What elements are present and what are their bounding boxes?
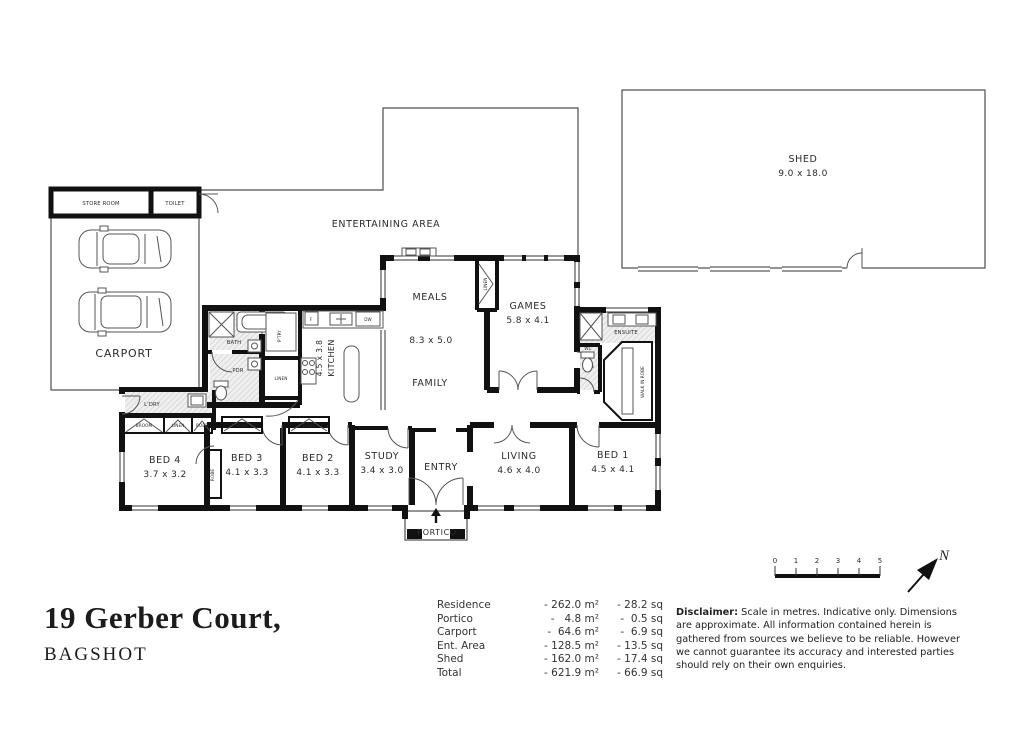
scale-bar: 0 1 2 3 4 5 bbox=[773, 557, 882, 576]
address-line1: 19 Gerber Court, bbox=[44, 600, 281, 636]
robe-bed3-label: ROBE bbox=[236, 423, 248, 428]
table-row: Residence - 262.0 m² - 28.2 sq bbox=[437, 599, 663, 613]
pantry-label: P'TRY bbox=[277, 330, 282, 342]
areas-table: Residence - 262.0 m² - 28.2 sq Portico -… bbox=[437, 599, 663, 681]
entertaining-label: ENTERTAINING AREA bbox=[332, 219, 440, 230]
area-m2: - 162.0 m² bbox=[513, 653, 599, 667]
car-icon bbox=[79, 288, 171, 336]
car-icon bbox=[79, 226, 171, 272]
toilet-label: TOILET bbox=[164, 201, 185, 207]
bed1-dims: 4.5 x 4.1 bbox=[591, 465, 634, 475]
area-label: Ent. Area bbox=[437, 640, 513, 654]
area-label: Carport bbox=[437, 626, 513, 640]
area-m2: - 128.5 m² bbox=[513, 640, 599, 654]
bed1-label: BED 1 bbox=[597, 450, 629, 461]
bed2-dims: 4.1 x 3.3 bbox=[296, 468, 339, 478]
portico: PORTICO bbox=[405, 508, 467, 540]
family-label: FAMILY bbox=[412, 378, 448, 389]
pdr-label: PDR bbox=[232, 368, 244, 374]
linen-hall-label: LINEN bbox=[172, 423, 185, 428]
bed2-label: BED 2 bbox=[302, 453, 334, 464]
address-line2: BAGSHOT bbox=[44, 644, 281, 666]
bath-label: BATH bbox=[227, 340, 242, 346]
table-row: Portico - 4.8 m² - 0.5 sq bbox=[437, 613, 663, 627]
area-sq: - 0.5 sq bbox=[599, 613, 663, 627]
games-label: GAMES bbox=[509, 301, 546, 312]
dishwasher-label: DW bbox=[364, 317, 372, 322]
address-block: 19 Gerber Court, BAGSHOT bbox=[44, 600, 281, 666]
entry-label: ENTRY bbox=[424, 462, 458, 473]
table-row: Total - 621.9 m² - 66.9 sq bbox=[437, 667, 663, 681]
robe-hall-label: ROBE bbox=[196, 423, 208, 428]
area-label: Portico bbox=[437, 613, 513, 627]
shed-label: SHED bbox=[789, 154, 818, 165]
area-label: Residence bbox=[437, 599, 513, 613]
area-m2: - 64.6 m² bbox=[513, 626, 599, 640]
basin bbox=[248, 340, 261, 352]
store-room-label: STORE ROOM bbox=[82, 201, 119, 207]
portico-label: PORTICO bbox=[417, 528, 456, 537]
area-m2: - 262.0 m² bbox=[513, 599, 599, 613]
scale-tick-5: 5 bbox=[878, 557, 882, 565]
table-row: Ent. Area - 128.5 m² - 13.5 sq bbox=[437, 640, 663, 654]
disclaimer-heading: Disclaimer: bbox=[676, 607, 738, 618]
shed-roller-doors bbox=[638, 265, 842, 272]
disclaimer: Disclaimer: Scale in metres. Indicative … bbox=[676, 606, 966, 672]
broom-label: BROOM bbox=[136, 423, 153, 428]
scale-tick-3: 3 bbox=[836, 557, 840, 565]
study-label: STUDY bbox=[365, 451, 399, 462]
north-arrow-icon: N bbox=[908, 548, 950, 592]
living-dims: 4.6 x 4.0 bbox=[497, 466, 540, 476]
robe-bed4-label: ROBE bbox=[210, 469, 215, 481]
area-m2: - 621.9 m² bbox=[513, 667, 599, 681]
table-row: Carport - 64.6 m² - 6.9 sq bbox=[437, 626, 663, 640]
study-dims: 3.4 x 3.0 bbox=[360, 466, 403, 476]
outdoor-bench bbox=[402, 248, 436, 256]
basin bbox=[248, 358, 261, 370]
toilet-door-arc bbox=[199, 194, 218, 213]
table-row: Shed - 162.0 m² - 17.4 sq bbox=[437, 653, 663, 667]
shed: SHED 9.0 x 18.0 bbox=[622, 90, 985, 272]
stove bbox=[301, 358, 316, 384]
area-m2: - 4.8 m² bbox=[513, 613, 599, 627]
bed4-dims: 3.7 x 3.2 bbox=[143, 470, 186, 480]
scale-tick-1: 1 bbox=[794, 557, 798, 565]
area-label: Shed bbox=[437, 653, 513, 667]
area-sq: - 6.9 sq bbox=[599, 626, 663, 640]
laundry-label: L'DRY bbox=[144, 402, 160, 408]
linen-games-label: LINEN bbox=[483, 278, 488, 291]
area-sq: - 28.2 sq bbox=[599, 599, 663, 613]
area-sq: - 13.5 sq bbox=[599, 640, 663, 654]
ensuite-label: ENSUITE bbox=[614, 330, 638, 336]
wc-label: WC bbox=[584, 346, 591, 351]
toilet-fixture bbox=[214, 381, 228, 400]
bed4-label: BED 4 bbox=[149, 455, 181, 466]
robe-bed2-label: ROBE bbox=[303, 423, 315, 428]
living-label: LIVING bbox=[501, 451, 536, 462]
shed-dims: 9.0 x 18.0 bbox=[778, 169, 827, 179]
bed3-dims: 4.1 x 3.3 bbox=[225, 468, 268, 478]
area-sq: - 66.9 sq bbox=[599, 667, 663, 681]
kitchen-island bbox=[344, 346, 359, 402]
area-sq: - 17.4 sq bbox=[599, 653, 663, 667]
kitchen-label: KITCHEN bbox=[327, 339, 336, 376]
scale-tick-0: 0 bbox=[773, 557, 777, 565]
bed3-label: BED 3 bbox=[231, 453, 263, 464]
area-label: Total bbox=[437, 667, 513, 681]
meals-label: MEALS bbox=[412, 292, 447, 303]
shed-door bbox=[847, 248, 862, 271]
north-label: N bbox=[938, 548, 950, 564]
floorplan-page: SHED 9.0 x 18.0 ENTERTAINING AREA STORE … bbox=[0, 0, 1024, 731]
open-area-dims: 8.3 x 5.0 bbox=[409, 336, 452, 346]
carport-label: CARPORT bbox=[95, 347, 152, 360]
wc-toilet bbox=[581, 352, 594, 372]
kitchen-dims: 4.5 x 3.8 bbox=[315, 340, 324, 377]
scale-tick-2: 2 bbox=[815, 557, 819, 565]
scale-tick-4: 4 bbox=[857, 557, 862, 565]
entertaining-area: ENTERTAINING AREA bbox=[201, 108, 578, 256]
carport: STORE ROOM TOILET CARPORT bbox=[51, 188, 218, 390]
wir-label: WALK IN ROBE bbox=[640, 366, 645, 398]
linen-kitchen-label: LINEN bbox=[275, 376, 288, 381]
games-dims: 5.8 x 4.1 bbox=[506, 316, 549, 326]
